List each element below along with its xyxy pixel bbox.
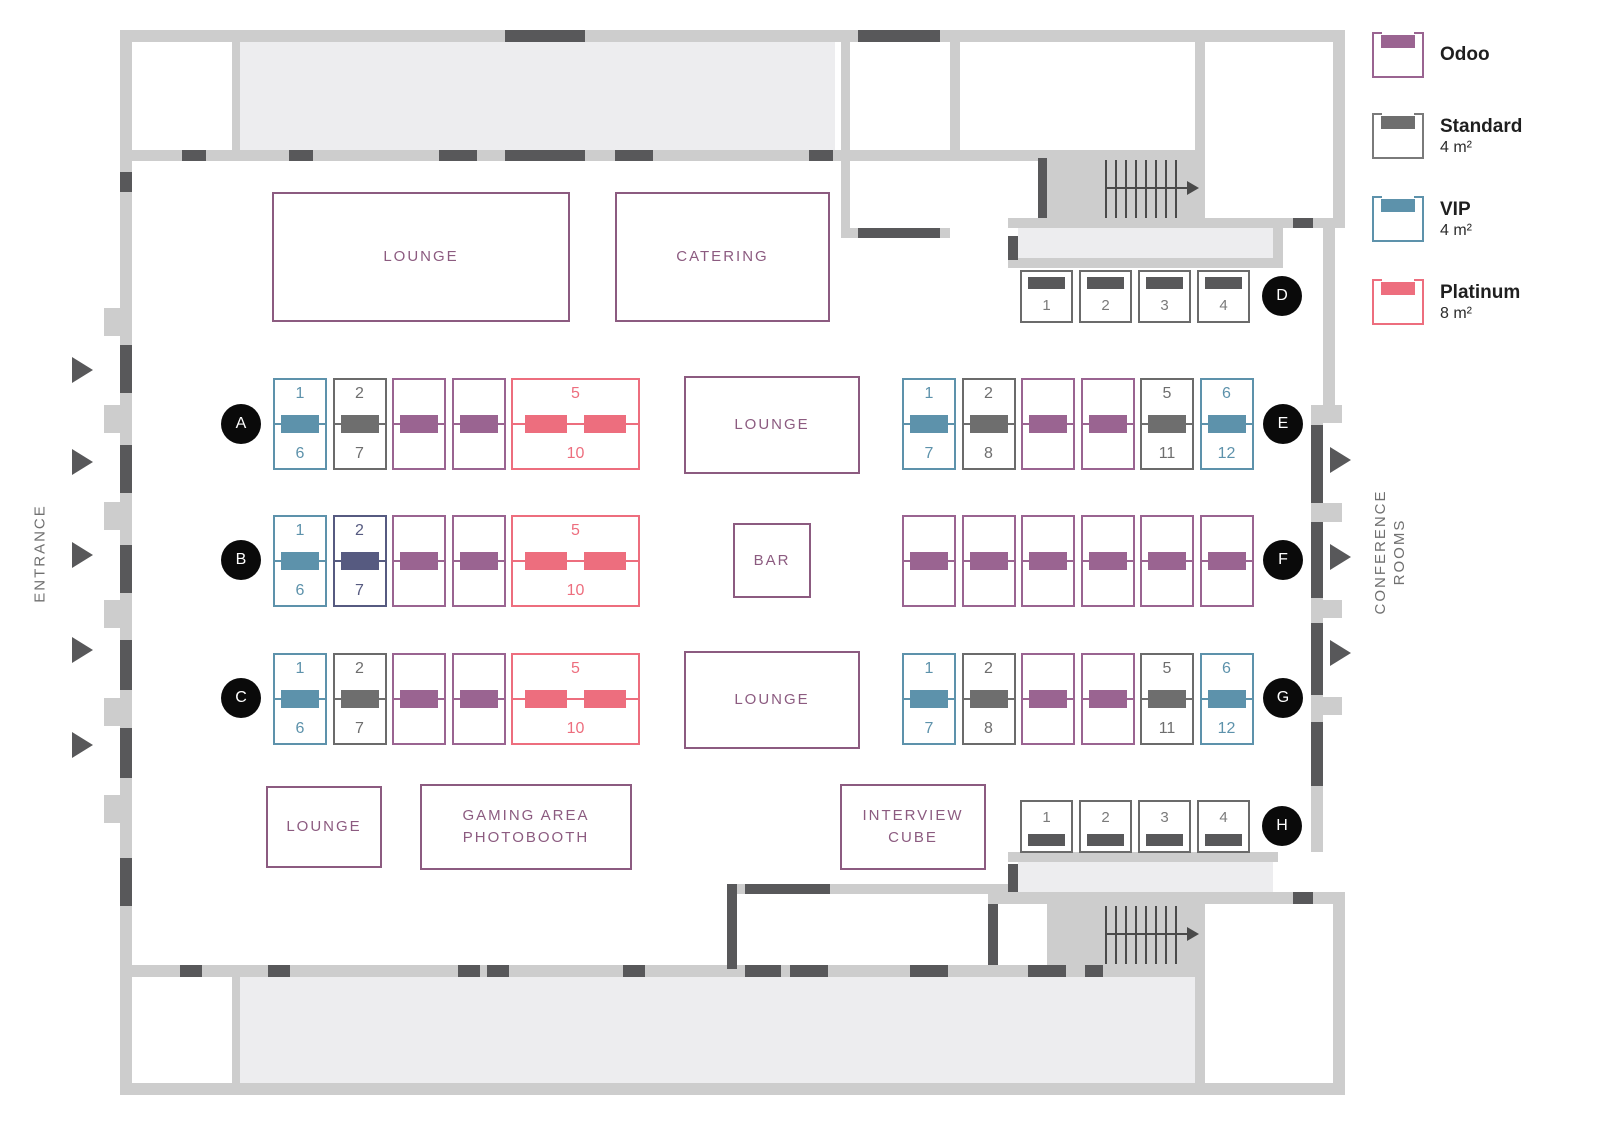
booth-table	[341, 552, 379, 570]
booth-E-3[interactable]	[1021, 378, 1075, 470]
staircase	[1105, 906, 1178, 964]
booth-number-bottom: 11	[1142, 720, 1192, 738]
wall-segment	[1008, 258, 1283, 268]
booth-number-bottom: 10	[513, 445, 638, 463]
booth-table	[1148, 552, 1186, 570]
door-opening	[120, 545, 132, 593]
booth-number-bottom: 7	[335, 445, 385, 463]
booth-table	[584, 552, 626, 570]
booth-A-2[interactable]: 27	[333, 378, 387, 470]
door-opening	[910, 965, 948, 977]
booth-number-top: 5	[1142, 385, 1192, 403]
booth-number-bottom: 10	[513, 720, 638, 738]
booth-table	[341, 690, 379, 708]
booth-H-2[interactable]: 2	[1079, 800, 1132, 853]
area-lounge-middle: LOUNGE	[684, 376, 860, 474]
vip-booth-icon	[1372, 196, 1424, 242]
area-label: LOUNGE	[734, 414, 809, 436]
wall-segment	[1008, 852, 1278, 862]
door-opening	[727, 884, 737, 969]
door-opening	[1008, 864, 1018, 892]
wall-segment	[104, 502, 122, 530]
door-opening	[268, 965, 290, 977]
booth-number: 1	[1022, 297, 1071, 314]
area-bar: BAR	[733, 523, 811, 598]
booth-table	[281, 552, 319, 570]
door-opening	[615, 150, 653, 161]
booth-table	[1089, 415, 1127, 433]
room	[1018, 228, 1273, 258]
booth-G-5[interactable]: 511	[1140, 653, 1194, 745]
floor-plan: 1627510162751016275101234172851161217285…	[0, 0, 1600, 1124]
conference-rooms-label: CONFERENCE ROOMS	[1371, 452, 1409, 652]
door-opening	[120, 728, 132, 778]
booth-number-top: 6	[1202, 385, 1252, 403]
booth-number-top: 2	[335, 522, 385, 540]
area-label: LOUNGE	[383, 246, 458, 268]
door-opening	[120, 640, 132, 690]
area-label: LOUNGE	[734, 689, 809, 711]
booth-table	[460, 415, 498, 433]
booth-table	[1148, 415, 1186, 433]
area-label: CATERING	[676, 246, 768, 268]
wall-segment	[104, 600, 122, 628]
row-marker-F: F	[1263, 540, 1303, 580]
booth-B-2[interactable]: 27	[333, 515, 387, 607]
row-marker-D: D	[1262, 276, 1302, 316]
stair-direction-arrow	[1105, 933, 1187, 935]
booth-table	[1089, 552, 1127, 570]
conference-arrow-icon	[1330, 640, 1351, 666]
booth-table	[1208, 690, 1246, 708]
booth-number-top: 5	[513, 660, 638, 678]
wall-segment	[1323, 218, 1335, 412]
booth-table	[400, 690, 438, 708]
legend-label: VIP	[1440, 198, 1472, 221]
row-marker-E: E	[1263, 404, 1303, 444]
booth-table	[970, 690, 1008, 708]
odoo-booth-icon	[1372, 32, 1424, 78]
door-opening	[505, 150, 585, 161]
booth-G-4[interactable]	[1081, 653, 1135, 745]
legend-size: 8 m²	[1440, 304, 1520, 324]
door-opening	[505, 30, 585, 42]
booth-H-1[interactable]: 1	[1020, 800, 1073, 853]
door-opening	[120, 858, 132, 906]
wall-segment	[841, 42, 850, 238]
booth-number-bottom: 6	[275, 582, 325, 600]
legend-size: 4 m²	[1440, 138, 1522, 158]
wall-segment	[1333, 30, 1345, 228]
door-opening	[1311, 623, 1323, 695]
booth-number-top: 1	[904, 660, 954, 678]
booth-A-5[interactable]: 510	[511, 378, 640, 470]
wall-segment	[104, 308, 122, 336]
entrance-arrow-icon	[72, 732, 93, 758]
wall-segment	[120, 30, 1345, 42]
booth-table	[1087, 834, 1124, 846]
wall-segment	[104, 795, 122, 823]
booth-table	[525, 552, 567, 570]
legend-label: Platinum	[1440, 281, 1520, 304]
row-marker-C: C	[221, 678, 261, 718]
area-gaming: GAMING AREAPHOTOBOOTH	[420, 784, 632, 870]
booth-table	[341, 415, 379, 433]
booth-number-bottom: 12	[1202, 445, 1252, 463]
wall-segment	[1333, 892, 1345, 1095]
row-marker-G: G	[1263, 678, 1303, 718]
booth-table	[525, 415, 567, 433]
booth-table	[1029, 552, 1067, 570]
area-catering: CATERING	[615, 192, 830, 322]
wall-segment	[232, 977, 240, 1083]
room	[240, 42, 835, 150]
wall-segment	[120, 1083, 1345, 1095]
booth-E-5[interactable]: 511	[1140, 378, 1194, 470]
wall-segment	[950, 42, 960, 158]
wall-segment	[1311, 405, 1342, 423]
area-lounge-small: LOUNGE	[266, 786, 382, 868]
area-label: CUBE	[888, 827, 938, 849]
booth-C-1[interactable]: 16	[273, 653, 327, 745]
door-opening	[790, 965, 828, 977]
stair-direction-arrow	[1105, 187, 1187, 189]
booth-number-bottom: 6	[275, 445, 325, 463]
booth-number: 3	[1140, 809, 1189, 826]
area-label: BAR	[754, 550, 791, 572]
legend-label: Standard	[1440, 115, 1522, 138]
door-opening	[1008, 236, 1018, 260]
entrance-arrow-icon	[72, 542, 93, 568]
booth-table	[910, 552, 948, 570]
wall-segment	[1195, 42, 1205, 228]
booth-table	[1208, 552, 1246, 570]
door-opening	[745, 965, 781, 977]
area-label: INTERVIEW	[862, 805, 963, 827]
door-opening	[487, 965, 509, 977]
entrance-label: ENTRANCE	[31, 454, 50, 654]
door-opening	[120, 172, 132, 192]
booth-B-3[interactable]	[392, 515, 446, 607]
booth-table	[1146, 277, 1183, 289]
booth-number-bottom: 12	[1202, 720, 1252, 738]
booth-number: 4	[1199, 809, 1248, 826]
wall-segment	[1311, 697, 1342, 715]
door-opening	[289, 150, 313, 161]
booth-table	[970, 552, 1008, 570]
booth-number-bottom: 7	[904, 445, 954, 463]
booth-table	[910, 690, 948, 708]
booth-number-top: 5	[1142, 660, 1192, 678]
booth-A-3[interactable]	[392, 378, 446, 470]
booth-table	[400, 415, 438, 433]
booth-G-6[interactable]: 612	[1200, 653, 1254, 745]
booth-number: 1	[1022, 809, 1071, 826]
booth-B-1[interactable]: 16	[273, 515, 327, 607]
booth-number-top: 5	[513, 522, 638, 540]
staircase	[1105, 160, 1178, 218]
row-marker-A: A	[221, 404, 261, 444]
booth-number-top: 5	[513, 385, 638, 403]
booth-C-4[interactable]	[452, 653, 506, 745]
booth-table	[1205, 277, 1242, 289]
booth-table	[1205, 834, 1242, 846]
door-opening	[745, 884, 830, 894]
booth-table	[1029, 690, 1067, 708]
booth-number-bottom: 6	[275, 720, 325, 738]
booth-E-6[interactable]: 612	[1200, 378, 1254, 470]
door-opening	[439, 150, 477, 161]
wall-segment	[1311, 503, 1342, 522]
booth-number-bottom: 8	[964, 445, 1014, 463]
booth-table	[584, 690, 626, 708]
wall-segment	[1195, 892, 1205, 1095]
booth-table	[400, 552, 438, 570]
room	[1018, 862, 1273, 892]
door-opening	[1293, 218, 1313, 228]
door-opening	[1028, 965, 1066, 977]
wall-segment	[232, 42, 240, 150]
booth-F-3[interactable]	[1021, 515, 1075, 607]
booth-table	[525, 690, 567, 708]
booth-table	[584, 415, 626, 433]
booth-number-top: 1	[275, 522, 325, 540]
booth-G-1[interactable]: 17	[902, 653, 956, 745]
booth-E-4[interactable]	[1081, 378, 1135, 470]
booth-B-4[interactable]	[452, 515, 506, 607]
booth-number-top: 2	[964, 385, 1014, 403]
booth-number: 3	[1140, 297, 1189, 314]
booth-table	[281, 690, 319, 708]
booth-number-bottom: 7	[335, 720, 385, 738]
booth-E-1[interactable]: 17	[902, 378, 956, 470]
booth-table	[1208, 415, 1246, 433]
booth-number-top: 1	[275, 660, 325, 678]
booth-F-1[interactable]	[902, 515, 956, 607]
door-opening	[120, 345, 132, 393]
booth-F-4[interactable]	[1081, 515, 1135, 607]
booth-table	[1028, 277, 1065, 289]
wall-segment	[104, 405, 122, 433]
booth-number-bottom: 10	[513, 582, 638, 600]
booth-A-4[interactable]	[452, 378, 506, 470]
booth-table	[281, 415, 319, 433]
entrance-arrow-icon	[72, 449, 93, 475]
booth-C-5[interactable]: 510	[511, 653, 640, 745]
booth-D-1[interactable]: 1	[1020, 270, 1073, 323]
booth-F-6[interactable]	[1200, 515, 1254, 607]
booth-number-bottom: 11	[1142, 445, 1192, 463]
door-opening	[858, 30, 940, 42]
booth-G-2[interactable]: 28	[962, 653, 1016, 745]
booth-D-4[interactable]: 4	[1197, 270, 1250, 323]
booth-number-top: 1	[275, 385, 325, 403]
wall-segment	[988, 892, 1345, 904]
booth-C-3[interactable]	[392, 653, 446, 745]
door-opening	[458, 965, 480, 977]
door-opening	[1311, 722, 1323, 786]
wall-segment	[1311, 600, 1342, 618]
door-opening	[1311, 522, 1323, 598]
booth-G-3[interactable]	[1021, 653, 1075, 745]
room	[240, 977, 1195, 1083]
booth-F-5[interactable]	[1140, 515, 1194, 607]
booth-table	[1146, 834, 1183, 846]
booth-H-3[interactable]: 3	[1138, 800, 1191, 853]
booth-number: 2	[1081, 809, 1130, 826]
booth-table	[460, 690, 498, 708]
conference-rooms-label-line1: CONFERENCE	[1371, 452, 1390, 652]
booth-A-1[interactable]: 16	[273, 378, 327, 470]
area-lounge-lower: LOUNGE	[684, 651, 860, 749]
wall-segment	[104, 698, 122, 726]
booth-table	[460, 552, 498, 570]
conference-arrow-icon	[1330, 544, 1351, 570]
door-opening	[182, 150, 206, 161]
booth-number-top: 2	[335, 385, 385, 403]
booth-number: 4	[1199, 297, 1248, 314]
booth-table	[910, 415, 948, 433]
legend-size: 4 m²	[1440, 221, 1472, 241]
standard-booth-icon	[1372, 113, 1424, 159]
conference-arrow-icon	[1330, 447, 1351, 473]
booth-H-4[interactable]: 4	[1197, 800, 1250, 853]
door-opening	[1038, 158, 1047, 218]
booth-number: 2	[1081, 297, 1130, 314]
booth-table	[1087, 277, 1124, 289]
wall-segment	[1273, 218, 1283, 268]
door-opening	[988, 904, 998, 965]
booth-number-bottom: 7	[335, 582, 385, 600]
booth-E-2[interactable]: 28	[962, 378, 1016, 470]
booth-number-top: 1	[904, 385, 954, 403]
booth-D-3[interactable]: 3	[1138, 270, 1191, 323]
booth-table	[1148, 690, 1186, 708]
booth-number-bottom: 8	[964, 720, 1014, 738]
booth-table	[1029, 415, 1067, 433]
stair-arrow-head	[1187, 927, 1199, 941]
entrance-arrow-icon	[72, 637, 93, 663]
area-label: PHOTOBOOTH	[463, 827, 589, 849]
platinum-booth-icon	[1372, 279, 1424, 325]
area-interview: INTERVIEWCUBE	[840, 784, 986, 870]
booth-table	[1089, 690, 1127, 708]
booth-number-top: 6	[1202, 660, 1252, 678]
booth-table	[970, 415, 1008, 433]
booth-B-5[interactable]: 510	[511, 515, 640, 607]
door-opening	[858, 228, 940, 238]
booth-number-top: 2	[335, 660, 385, 678]
booth-number-top: 2	[964, 660, 1014, 678]
booth-F-2[interactable]	[962, 515, 1016, 607]
booth-D-2[interactable]: 2	[1079, 270, 1132, 323]
area-label: LOUNGE	[286, 816, 361, 838]
door-opening	[180, 965, 202, 977]
entrance-arrow-icon	[72, 357, 93, 383]
door-opening	[809, 150, 833, 161]
booth-table	[1028, 834, 1065, 846]
door-opening	[1293, 892, 1313, 904]
booth-number-bottom: 7	[904, 720, 954, 738]
door-opening	[1085, 965, 1103, 977]
legend-label: Odoo	[1440, 32, 1490, 78]
area-lounge-top: LOUNGE	[272, 192, 570, 322]
row-marker-B: B	[221, 540, 261, 580]
door-opening	[120, 445, 132, 493]
conference-rooms-label-line2: ROOMS	[1390, 452, 1409, 652]
stair-arrow-head	[1187, 181, 1199, 195]
booth-C-2[interactable]: 27	[333, 653, 387, 745]
area-label: GAMING AREA	[462, 805, 589, 827]
door-opening	[1311, 425, 1323, 503]
row-marker-H: H	[1262, 806, 1302, 846]
door-opening	[623, 965, 645, 977]
